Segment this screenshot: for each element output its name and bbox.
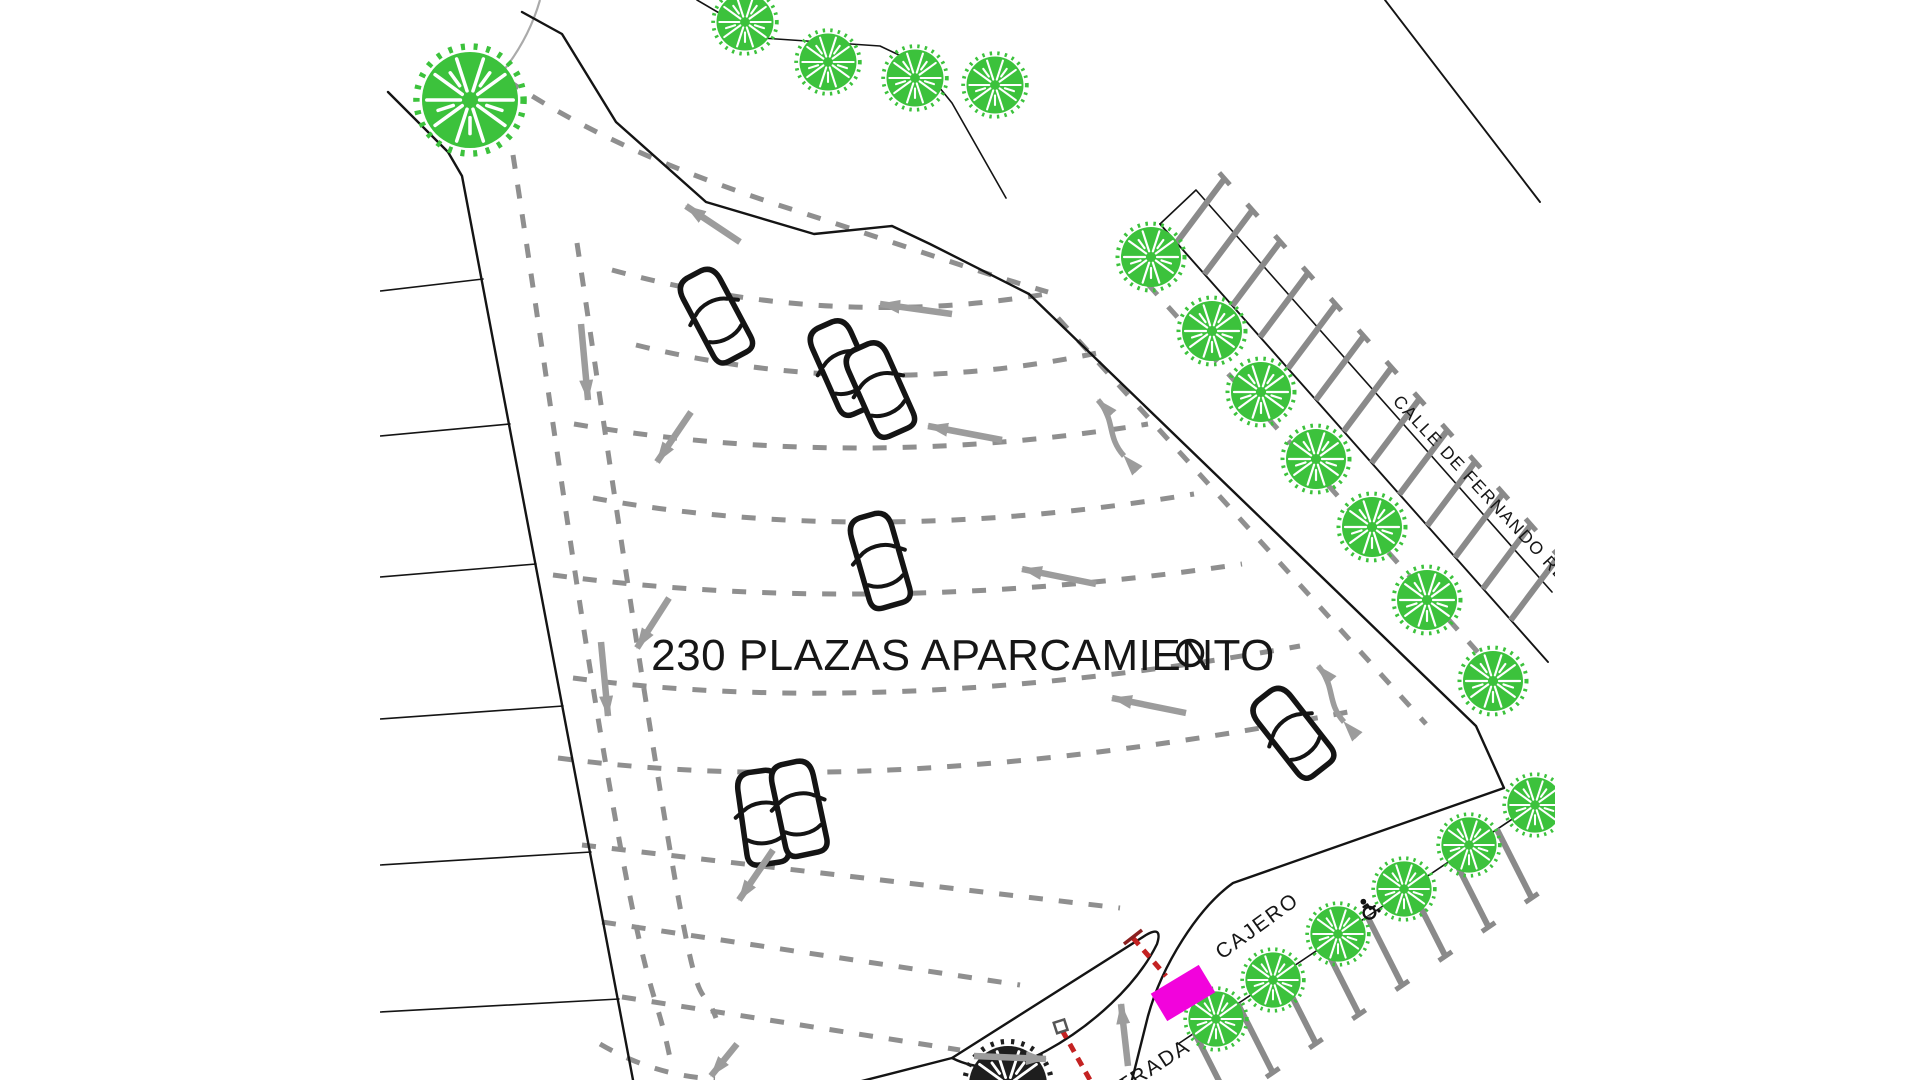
traffic-flow-arrow (1112, 698, 1186, 713)
tree-icon (1228, 359, 1295, 426)
street-southwest-curb (1160, 224, 1548, 662)
traffic-flow-arrow (581, 324, 588, 400)
two-way-flow-arrow-icon (1318, 666, 1344, 722)
car-icon (670, 262, 761, 369)
car-icon (841, 508, 919, 612)
aisle-dashed-line (602, 922, 1020, 985)
aisle-dashed-line (513, 155, 670, 1058)
car-icon (1243, 679, 1343, 786)
aisle-dashed-line (582, 845, 1120, 908)
car-body (1248, 683, 1338, 782)
parking-stall-tick (1367, 916, 1402, 985)
adjacent-stall-line (380, 279, 483, 291)
stall-tick-cap (1553, 550, 1564, 562)
parking-stall-tick (1177, 179, 1225, 243)
adjacent-stall-line (380, 564, 536, 577)
traffic-flow-arrow (1022, 569, 1096, 584)
traffic-flow-arrow (1121, 1004, 1128, 1066)
tree-icon (1373, 858, 1435, 920)
trees (416, 0, 1565, 1080)
parking-stall-tick (1260, 273, 1308, 337)
parking-stall-tick (1204, 210, 1252, 274)
street-far-curb (1385, 0, 1540, 202)
parking-stall-tick (1497, 829, 1532, 898)
capacity-label: 230 PLAZAS APARCAMIENTO (651, 631, 1275, 680)
car-body (675, 265, 756, 367)
parking-stall-tick (1232, 242, 1280, 306)
tree-icon (1438, 814, 1500, 876)
adjacent-stall-line (380, 706, 563, 719)
traffic-flow-arrow (974, 1056, 1046, 1059)
adjacent-stall-line (380, 424, 510, 436)
traffic-flow-arrow (928, 426, 1002, 440)
tree-icon (1118, 224, 1185, 291)
traffic-flow-arrow (711, 1044, 737, 1076)
gate-post (1054, 1019, 1068, 1033)
walkway-curve (504, 0, 540, 70)
tree-icon (1283, 426, 1350, 493)
traffic-flow-arrow (601, 642, 608, 716)
site-plan-canvas: 230 PLAZAS APARCAMIENTO CALLE DE FERNAND… (0, 0, 1920, 1080)
tree-icon (1504, 774, 1566, 836)
west-boundary-line (388, 92, 633, 1080)
parking-stall-tick (1288, 305, 1336, 369)
aisle-dashed-line (593, 494, 1194, 522)
tree-icon (713, 0, 777, 54)
tree-icon (963, 53, 1027, 117)
traffic-flow-arrow (686, 206, 740, 242)
aisle-dashed-line (574, 424, 1148, 448)
tree-icon (1460, 648, 1527, 715)
walkway-lower-line (522, 12, 1029, 294)
parking-stall-tick (1344, 367, 1392, 431)
aisle-dashed-line (600, 1044, 715, 1079)
aisle-dashed-line (612, 270, 1046, 308)
tree-canopy (969, 1046, 1047, 1080)
adjacent-stall-line (380, 999, 619, 1012)
tree-icon (1307, 903, 1369, 965)
aisle-dashed-line (622, 997, 960, 1050)
parking-stall-tick (1316, 336, 1364, 400)
tree-icon (1394, 567, 1461, 634)
aisle-dashed-line (558, 712, 1348, 772)
tree-icon (1242, 949, 1304, 1011)
aisle-dashed-line (507, 80, 1048, 292)
tree-icon (1339, 494, 1406, 561)
traffic-flow-arrow (657, 412, 691, 462)
tree-icon (883, 46, 947, 110)
site-plan: 230 PLAZAS APARCAMIENTO CALLE DE FERNAND… (0, 0, 1920, 1080)
entrance-island-spur (858, 1058, 952, 1080)
tree-icon (796, 30, 860, 94)
tree-icon (1179, 298, 1246, 365)
adjacent-stall-line (380, 852, 591, 865)
gate-barrier-icon (1062, 1030, 1090, 1080)
